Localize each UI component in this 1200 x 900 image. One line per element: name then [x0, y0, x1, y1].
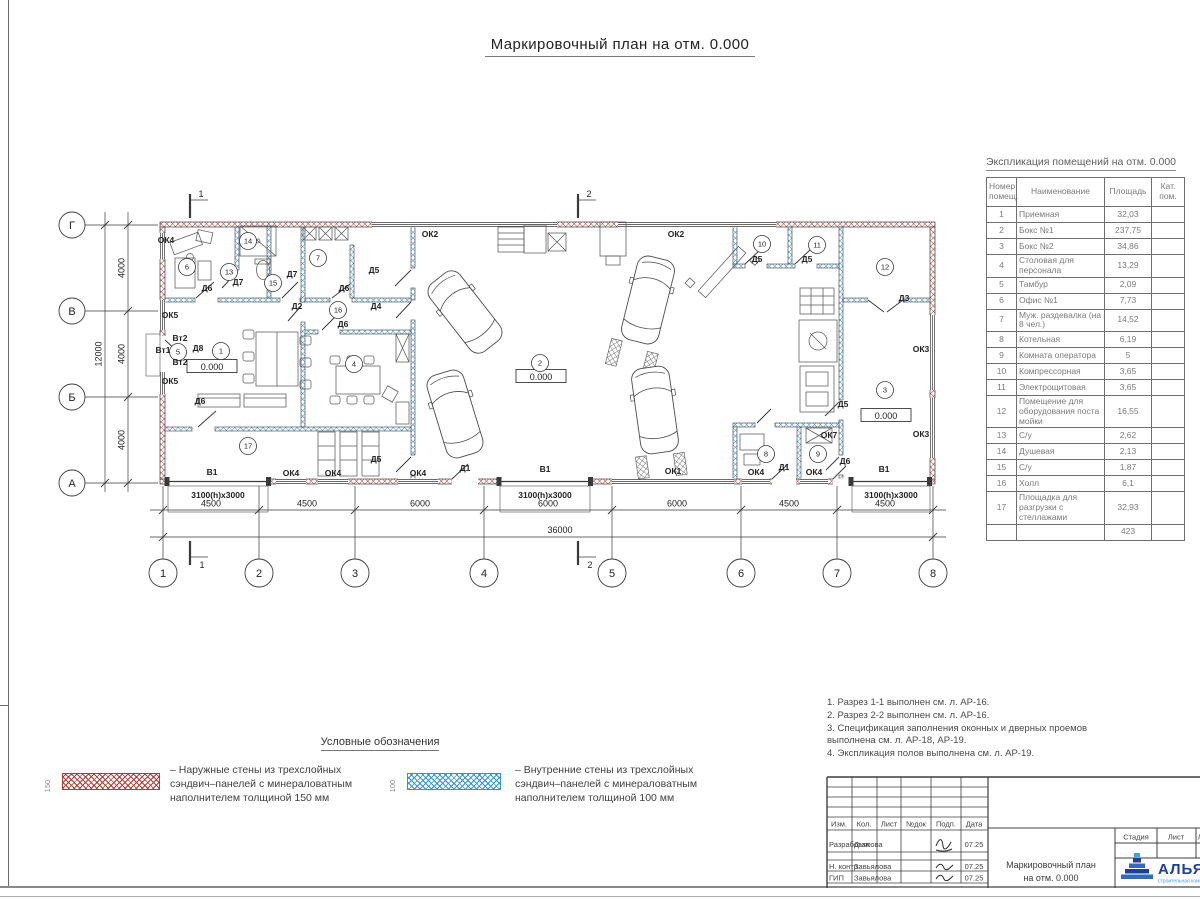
axis-label: Г	[69, 220, 75, 232]
table-cell: 14	[987, 444, 1017, 460]
table-cell	[1152, 332, 1185, 348]
opening-label: ОК5	[162, 376, 179, 386]
opening-label: ОК3	[913, 344, 930, 354]
table-cell: 3,65	[1105, 364, 1152, 380]
notes: 1. Разрез 1-1 выполнен см. л. АР-16. 2. …	[827, 697, 1129, 761]
table-cell: 6,1	[1105, 476, 1152, 492]
table-row: 15С/у1,87	[987, 460, 1185, 476]
table-header-row: Номер помещ. Наименование Площадь Кат. п…	[987, 178, 1185, 207]
dimension-label: 4000	[117, 430, 127, 450]
table-cell: Тамбур	[1017, 277, 1105, 293]
room-number: 13	[225, 268, 233, 277]
table-cell: Площадка для разгрузки с стеллажами	[1017, 492, 1105, 524]
tb-col: Подп.	[936, 820, 956, 829]
axis-label: А	[68, 478, 76, 490]
table-cell: Бокс №1	[1017, 223, 1105, 239]
table-cell: Электрощитовая	[1017, 380, 1105, 396]
table-cell: Комната оператора	[1017, 348, 1105, 364]
dimension-label: 4500	[875, 499, 895, 509]
axis-label: 2	[256, 568, 262, 580]
table-cell: Столовая для персонала	[1017, 255, 1105, 278]
table-row: 17Площадка для разгрузки с стеллажами32,…	[987, 492, 1185, 524]
opening-label: В1	[879, 464, 890, 474]
table-cell: Приемная	[1017, 207, 1105, 223]
table-cell	[1017, 524, 1105, 540]
drawing-sheet: Маркировочный план на отм. 0.000	[0, 0, 1200, 900]
section-mark: 1	[199, 560, 204, 570]
axis-label: 7	[834, 568, 840, 580]
opening-label: В1	[540, 464, 551, 474]
opening-label: Д6	[338, 319, 349, 329]
tb-col: Лист	[881, 820, 898, 829]
table-total-row: 423	[987, 524, 1185, 540]
room-number: 5	[176, 348, 180, 357]
tb-name: Дьякова	[854, 840, 883, 849]
table-cell: 17	[987, 492, 1017, 524]
table-cell: 2,62	[1105, 428, 1152, 444]
col-area: Площадь	[1105, 178, 1152, 207]
tb-name: Завьялова	[854, 874, 892, 883]
axis-label: 1	[160, 568, 166, 580]
room-number: 8	[764, 450, 768, 459]
cars	[421, 252, 687, 481]
table-cell: Душевая	[1017, 444, 1105, 460]
table-cell: 1	[987, 207, 1017, 223]
opening-label: Д5	[802, 254, 813, 264]
opening-label: Д1	[779, 462, 790, 472]
table-cell: 3,65	[1105, 380, 1152, 396]
dimension-label: 6000	[667, 499, 687, 509]
exterior-walls	[160, 222, 935, 484]
room-number: 16	[334, 306, 342, 315]
col-number: Номер помещ.	[987, 178, 1017, 207]
table-cell	[1152, 444, 1185, 460]
tb-name: Завьялова	[854, 862, 892, 871]
room-number: 15	[269, 279, 277, 288]
room-number: 14	[244, 237, 252, 246]
note-line: 2. Разрез 2-2 выполнен см. л. АР-16.	[827, 710, 1129, 723]
table-cell: 32,03	[1105, 207, 1152, 223]
opening-label: ОК4	[748, 467, 765, 477]
table-row: 13С/у2,62	[987, 428, 1185, 444]
table-cell: 2	[987, 223, 1017, 239]
opening-label: Д4	[371, 301, 382, 311]
table-cell: 13	[987, 428, 1017, 444]
opening-label: Д3	[899, 293, 910, 303]
opening-label: ОК2	[422, 229, 439, 239]
table-cell: С/у	[1017, 460, 1105, 476]
table-cell: 32,93	[1105, 492, 1152, 524]
legend-dim-100: 100	[388, 780, 398, 793]
table-cell	[1152, 348, 1185, 364]
table-cell: 2,09	[1105, 277, 1152, 293]
opening-label: Д5	[371, 454, 382, 464]
elevation-value: 0.000	[875, 411, 898, 421]
table-row: 7Муж. раздевалка (на 8 чел.)14,52	[987, 309, 1185, 332]
opening-label: ОК7	[821, 430, 838, 440]
opening-label: Д1	[460, 463, 471, 473]
table-cell: Офис №1	[1017, 293, 1105, 309]
table-cell	[1152, 396, 1185, 428]
table-cell: 16,55	[1105, 396, 1152, 428]
legend-swatch-exterior	[62, 773, 160, 790]
room-number: 3	[883, 386, 887, 395]
tb-col: Дата	[966, 820, 983, 829]
table-cell	[1152, 524, 1185, 540]
table-cell	[1152, 223, 1185, 239]
opening-label: Д6	[202, 283, 213, 293]
legend-title: Условные обозначения	[290, 736, 470, 751]
elevation-value: 0.000	[201, 362, 224, 372]
tb-role: ГИП	[829, 874, 844, 883]
tb-col: Кол.	[857, 820, 872, 829]
table-cell: 6	[987, 293, 1017, 309]
table-cell	[1152, 364, 1185, 380]
dimension-label: 4000	[117, 344, 127, 364]
opening-label: ОК4	[806, 467, 823, 477]
table-cell	[1152, 207, 1185, 223]
room-schedule-table: Номер помещ. Наименование Площадь Кат. п…	[986, 177, 1185, 541]
tb-date: 07.25	[965, 862, 984, 871]
table-cell: 8	[987, 332, 1017, 348]
table-row: 12Помещение для оборудования поста мойки…	[987, 396, 1185, 428]
table-cell: 13,29	[1105, 255, 1152, 278]
table-row: 8Котельная6,19	[987, 332, 1185, 348]
table-row: 9Комната оператора5	[987, 348, 1185, 364]
table-cell	[1152, 492, 1185, 524]
opening-label: 3100(h)x3000	[864, 490, 918, 500]
opening-label: Д6	[339, 283, 350, 293]
dimension-label: 4500	[201, 499, 221, 509]
title-block: Изм. Кол. Лист №док Подп. Дата 07.25 07.…	[827, 777, 1200, 888]
room-number: 17	[244, 442, 252, 451]
table-cell	[1152, 476, 1185, 492]
note-line: 3. Спецификация заполнения оконных и две…	[827, 723, 1129, 749]
legend-text-exterior: – Наружные стены из трехслойных сэндвич–…	[170, 763, 362, 806]
opening-label: Д5	[369, 265, 380, 275]
table-cell: 6,19	[1105, 332, 1152, 348]
axis-label: 6	[738, 568, 744, 580]
opening-label: ОК5	[162, 310, 179, 320]
room-number: 2	[538, 359, 542, 368]
tb-doc-title-2: на отм. 0.000	[1023, 873, 1078, 883]
interior-walls	[165, 227, 930, 479]
table-cell: 10	[987, 364, 1017, 380]
table-cell: 34,86	[1105, 239, 1152, 255]
tb-doc-title: Маркировочный план	[1006, 860, 1096, 870]
axis-label: В	[68, 306, 75, 318]
dimension-total-label: 12000	[94, 341, 104, 366]
dimension-label: 4500	[297, 499, 317, 509]
table-cell: 11	[987, 380, 1017, 396]
logo-text: АЛЬЯН	[1158, 861, 1200, 878]
table-row: 10Компрессорная3,65	[987, 364, 1185, 380]
note-line: 1. Разрез 1-1 выполнен см. л. АР-16.	[827, 697, 1129, 710]
axis-label: Б	[68, 392, 75, 404]
room-number: 9	[816, 450, 820, 459]
legend-text-interior: – Внутренние стены из трехслойных сэндви…	[515, 763, 707, 806]
table-row: 1Приемная32,03	[987, 207, 1185, 223]
table-row: 3Бокс №234,86	[987, 239, 1185, 255]
opening-label: В1	[207, 467, 218, 477]
opening-label: Д7	[287, 269, 298, 279]
table-cell	[987, 524, 1017, 540]
opening-label: Д2	[292, 301, 303, 311]
table-row: 14Душевая2,13	[987, 444, 1185, 460]
table-cell: 1,87	[1105, 460, 1152, 476]
table-cell	[1152, 309, 1185, 332]
opening-label: Д6	[840, 456, 851, 466]
opening-label: Д5	[752, 254, 763, 264]
table-cell: 9	[987, 348, 1017, 364]
table-cell	[1152, 239, 1185, 255]
table-cell: 14,52	[1105, 309, 1152, 332]
table-cell: 423	[1105, 524, 1152, 540]
axis-label: 3	[352, 568, 358, 580]
table-cell: 237,75	[1105, 223, 1152, 239]
table-cell: 7	[987, 309, 1017, 332]
opening-label: Д5	[838, 399, 849, 409]
table-cell: 5	[987, 277, 1017, 293]
tb-date: 07.25	[965, 840, 984, 849]
dimension-label: 6000	[410, 499, 430, 509]
table-row: 2Бокс №1237,75	[987, 223, 1185, 239]
opening-label: Д7	[233, 277, 244, 287]
opening-label: Д6	[195, 396, 206, 406]
opening-label: ОК4	[325, 468, 342, 478]
opening-label: ОК3	[913, 429, 930, 439]
opening-label: 3100(h)x3000	[191, 490, 245, 500]
axis-label: 5	[609, 568, 615, 580]
tb-stage: Стадия	[1123, 833, 1149, 842]
table-cell	[1152, 255, 1185, 278]
note-line: 4. Экспликация полов выполнена см. л. АР…	[827, 748, 1129, 761]
table-cell: 7,73	[1105, 293, 1152, 309]
opening-label: ОК4	[158, 235, 175, 245]
table-cell	[1152, 460, 1185, 476]
legend-dim-150: 150	[43, 780, 53, 793]
room-number: 12	[881, 263, 889, 272]
table-cell: Муж. раздевалка (на 8 чел.)	[1017, 309, 1105, 332]
tb-date: 07.25	[965, 874, 984, 883]
legend-swatch-interior	[407, 773, 501, 790]
room-schedule-title: Экспликация помещений на отм. 0.000	[986, 156, 1176, 171]
opening-label: Вт1	[156, 345, 171, 355]
section-mark: 2	[587, 560, 592, 570]
opening-label: ОК4	[410, 468, 427, 478]
dimension-label: 6000	[538, 499, 558, 509]
table-cell: Компрессорная	[1017, 364, 1105, 380]
room-number: 6	[185, 263, 189, 272]
opening-label: ОК4	[283, 468, 300, 478]
table-cell: С/у	[1017, 428, 1105, 444]
table-cell: 2,13	[1105, 444, 1152, 460]
table-row: 5Тамбур2,09	[987, 277, 1185, 293]
room-number: 11	[813, 241, 821, 250]
table-cell	[1152, 277, 1185, 293]
section-mark: 1	[198, 189, 203, 199]
table-cell: 15	[987, 460, 1017, 476]
table-cell: 5	[1105, 348, 1152, 364]
room-number: 4	[352, 360, 356, 369]
table-cell	[1152, 380, 1185, 396]
tb-stage: Лист	[1168, 833, 1185, 842]
table-row: 16Холл6,1	[987, 476, 1185, 492]
dimension-label: 4500	[779, 499, 799, 509]
table-row: 11Электрощитовая3,65	[987, 380, 1185, 396]
table-cell: Помещение для оборудования поста мойки	[1017, 396, 1105, 428]
opening-label: ОК1	[665, 466, 682, 476]
col-name: Наименование	[1017, 178, 1105, 207]
tb-col: Изм.	[831, 820, 847, 829]
opening-label: Вт2	[173, 333, 188, 343]
table-cell: Холл	[1017, 476, 1105, 492]
table-cell	[1152, 428, 1185, 444]
opening-label: 3100(h)x3000	[518, 490, 572, 500]
logo-subtext: строительная комп	[1158, 879, 1200, 885]
table-cell: Бокс №2	[1017, 239, 1105, 255]
col-category: Кат. пом.	[1152, 178, 1185, 207]
table-row: 4Столовая для персонала13,29	[987, 255, 1185, 278]
table-row: 6Офис №17,73	[987, 293, 1185, 309]
tb-col: №док	[906, 820, 927, 829]
plan-annotations: 12345678ГВБА4500450060006000600045004500…	[59, 189, 947, 587]
table-cell: 12	[987, 396, 1017, 428]
room-schedule: Экспликация помещений на отм. 0.000 Номе…	[986, 152, 1188, 541]
opening-label: Д8	[193, 343, 204, 353]
table-cell: 3	[987, 239, 1017, 255]
opening-label: Вт2	[173, 357, 188, 367]
room-number: 10	[758, 240, 766, 249]
opening-label: ОК2	[668, 229, 685, 239]
axis-label: 4	[481, 568, 487, 580]
dimension-label: 4000	[117, 258, 127, 278]
room-number: 7	[316, 254, 320, 263]
table-cell: 16	[987, 476, 1017, 492]
room-number: 1	[219, 347, 223, 356]
dimension-total-label: 36000	[547, 525, 572, 535]
table-cell: 4	[987, 255, 1017, 278]
axis-label: 8	[930, 568, 936, 580]
section-mark: 2	[586, 189, 591, 199]
elevation-value: 0.000	[530, 372, 553, 382]
table-cell	[1152, 293, 1185, 309]
table-cell: Котельная	[1017, 332, 1105, 348]
